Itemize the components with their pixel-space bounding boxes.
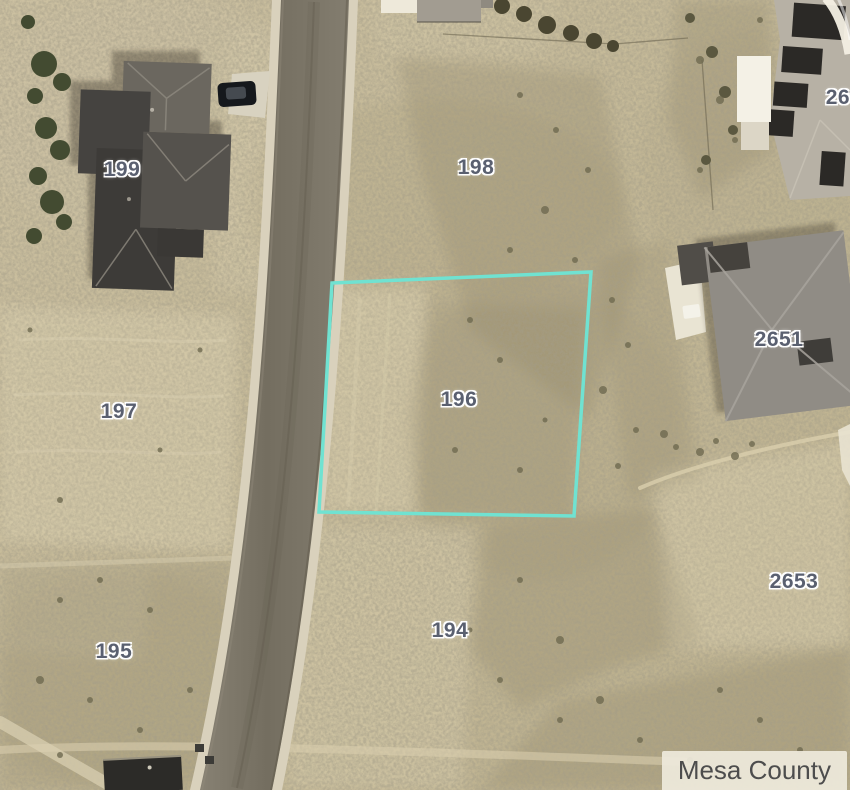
- parcel-label-197: 197: [101, 400, 138, 424]
- aerial-parcel-map[interactable]: 199 198 265 2651 197 196 2653 195 194 Me…: [0, 0, 850, 790]
- parcel-label-195: 195: [96, 640, 133, 664]
- parcel-label-198: 198: [458, 156, 495, 180]
- parcel-label-196: 196: [441, 388, 478, 412]
- map-attribution: Mesa County: [662, 751, 847, 790]
- white-outbuilding: [737, 56, 771, 122]
- parcel-label-199: 199: [104, 158, 141, 182]
- parcel-label-2653: 2653: [770, 570, 819, 594]
- white-vehicle: [682, 304, 701, 319]
- parcel-label-194: 194: [432, 619, 469, 643]
- parcel-label-2651: 2651: [755, 328, 804, 352]
- map-attribution-text: Mesa County: [678, 755, 831, 785]
- aerial-imagery: [0, 0, 850, 790]
- shed-bottom-left: [103, 756, 183, 790]
- parcel-label-265: 265: [826, 86, 850, 110]
